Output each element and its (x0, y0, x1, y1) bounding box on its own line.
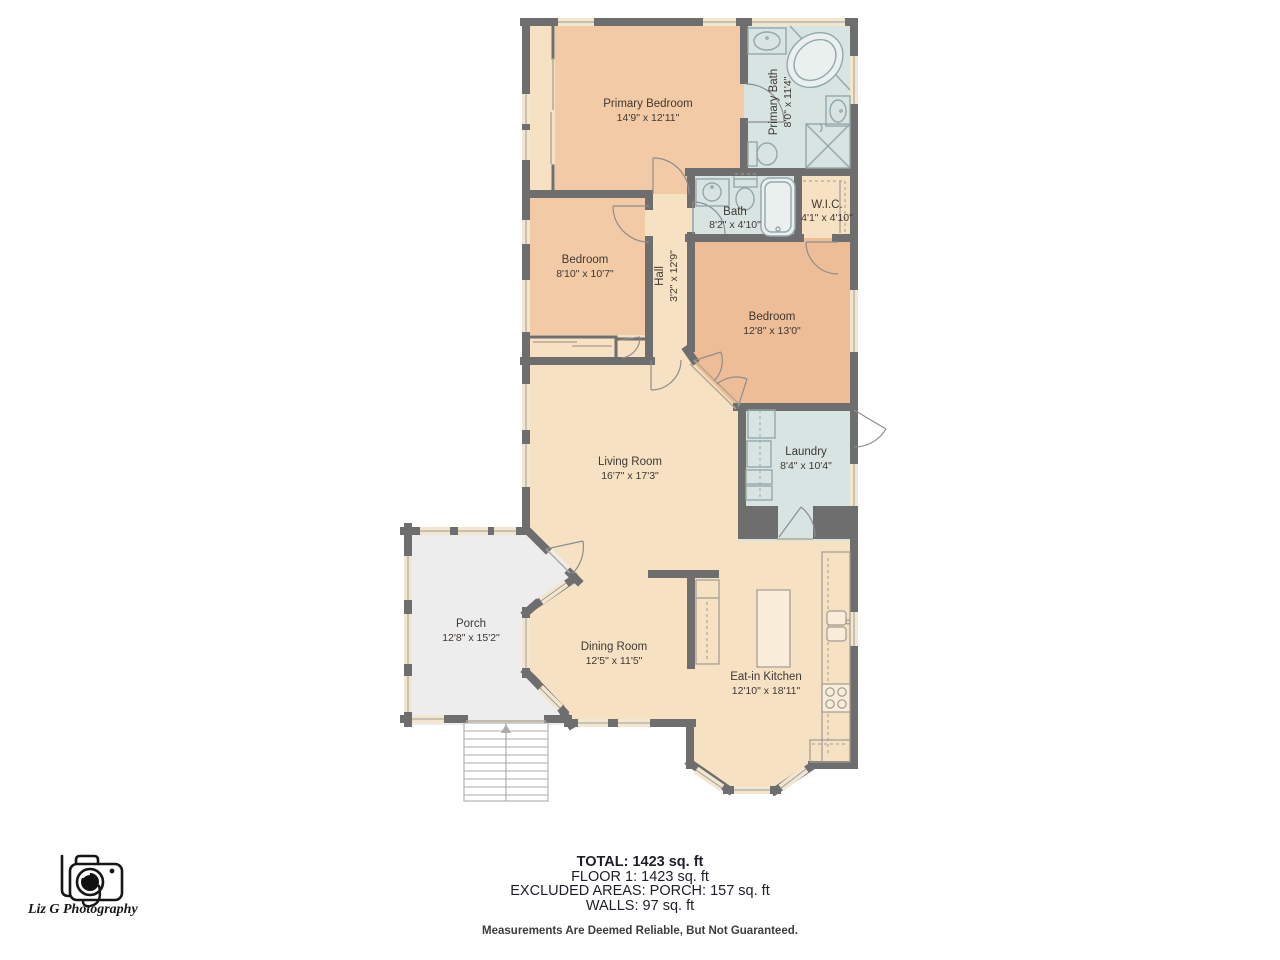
svg-text:12'8" x 13'0": 12'8" x 13'0" (743, 325, 801, 337)
svg-text:Hall: Hall (654, 266, 666, 286)
svg-text:Porch: Porch (456, 618, 486, 630)
svg-text:8'4" x 10'4": 8'4" x 10'4" (780, 460, 832, 472)
svg-text:3'2" x 12'9": 3'2" x 12'9" (668, 250, 680, 302)
svg-text:Living Room: Living Room (598, 456, 662, 468)
svg-text:4'1" x 4'10": 4'1" x 4'10" (801, 212, 853, 224)
svg-text:Dining Room: Dining Room (581, 641, 647, 653)
svg-text:Primary Bedroom: Primary Bedroom (603, 98, 692, 110)
stairs (464, 723, 548, 801)
bathtub-icon (761, 178, 795, 236)
bedroom-3-floor (689, 238, 856, 409)
svg-text:14'9" x 12'11": 14'9" x 12'11" (617, 112, 680, 124)
svg-text:8'2" x 4'10": 8'2" x 4'10" (709, 219, 761, 231)
walls-area: WALLS: 97 sq. ft (0, 899, 1280, 914)
svg-text:8'10" x 10'7": 8'10" x 10'7" (556, 268, 614, 280)
svg-text:Primary Bath: Primary Bath (768, 69, 780, 135)
svg-text:Bedroom: Bedroom (562, 254, 609, 266)
svg-text:Laundry: Laundry (785, 446, 827, 458)
kitchen-island (757, 590, 790, 667)
svg-text:8'0" x 11'4": 8'0" x 11'4" (782, 76, 794, 127)
floor-plan: Primary Bedroom 14'9" x 12'11" Primary B… (0, 0, 1280, 960)
svg-text:12'8" x 15'2": 12'8" x 15'2" (442, 632, 500, 644)
disclaimer: Measurements Are Deemed Reliable, But No… (0, 925, 1280, 937)
svg-text:12'10" x 18'11": 12'10" x 18'11" (732, 685, 801, 697)
svg-text:Eat-in Kitchen: Eat-in Kitchen (730, 671, 802, 683)
laundry-exterior-door (854, 410, 886, 447)
bedroom-2-floor (526, 198, 645, 335)
svg-text:Bath: Bath (723, 206, 747, 218)
excluded-areas: EXCLUDED AREAS: PORCH: 157 sq. ft (0, 884, 1280, 899)
svg-text:16'7" x 17'3": 16'7" x 17'3" (601, 470, 659, 482)
svg-text:12'5" x 11'5": 12'5" x 11'5" (586, 655, 643, 667)
svg-text:Bedroom: Bedroom (749, 311, 796, 323)
floor1-area: FLOOR 1: 1423 sq. ft (0, 870, 1280, 885)
svg-text:W.I.C.: W.I.C. (811, 199, 842, 211)
total-area: TOTAL: 1423 sq. ft (0, 855, 1280, 870)
stove-icon (822, 684, 850, 712)
area-summary: TOTAL: 1423 sq. ft FLOOR 1: 1423 sq. ft … (0, 855, 1280, 949)
